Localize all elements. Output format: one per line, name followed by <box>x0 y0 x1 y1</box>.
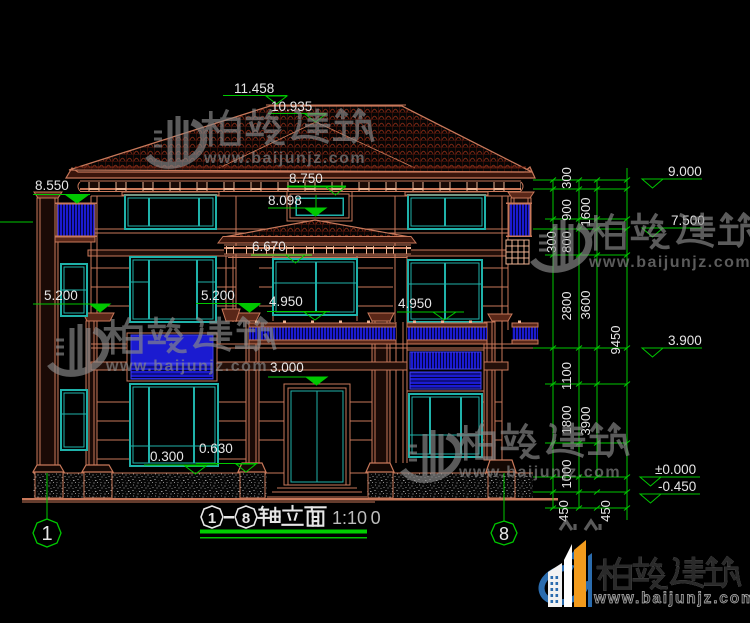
svg-text:2800: 2800 <box>559 292 574 321</box>
svg-text:11.458: 11.458 <box>234 81 274 96</box>
svg-text:450: 450 <box>598 500 613 522</box>
svg-text:4.950: 4.950 <box>269 294 303 309</box>
svg-text:3.900: 3.900 <box>668 333 702 348</box>
svg-text:www.baijunjz.com: www.baijunjz.com <box>458 464 621 481</box>
svg-text:450: 450 <box>556 500 571 522</box>
svg-text:3600: 3600 <box>578 291 593 320</box>
svg-text:10.935: 10.935 <box>271 99 312 114</box>
svg-text:4.950: 4.950 <box>398 296 432 311</box>
svg-text:0.630: 0.630 <box>199 441 233 456</box>
svg-text:1100: 1100 <box>559 362 574 390</box>
svg-text:0.300: 0.300 <box>150 449 184 464</box>
svg-text:1: 1 <box>41 523 52 545</box>
svg-text:8.550: 8.550 <box>35 178 69 193</box>
svg-text:3.000: 3.000 <box>270 360 304 375</box>
svg-text:300: 300 <box>559 167 574 189</box>
svg-text:8: 8 <box>242 510 250 527</box>
svg-text:900: 900 <box>559 199 574 221</box>
svg-text:6.670: 6.670 <box>252 239 286 254</box>
svg-text:±0.000: ±0.000 <box>655 462 696 477</box>
svg-text:www.baijunjz.com: www.baijunjz.com <box>105 358 268 375</box>
svg-text:5.200: 5.200 <box>44 288 78 303</box>
svg-text:8.750: 8.750 <box>289 171 323 186</box>
svg-text:9450: 9450 <box>608 326 623 355</box>
svg-text:www.baijunjz.com: www.baijunjz.com <box>203 150 366 167</box>
svg-text:1600: 1600 <box>578 198 593 227</box>
svg-text:www.baijunjz.com: www.baijunjz.com <box>593 590 750 607</box>
svg-text:8: 8 <box>499 524 509 544</box>
svg-text:9.000: 9.000 <box>668 164 702 179</box>
svg-text:5.200: 5.200 <box>201 288 235 303</box>
svg-text:www.baijunjz.com: www.baijunjz.com <box>588 254 750 271</box>
svg-text:-0.450: -0.450 <box>658 479 696 494</box>
svg-text:8.098: 8.098 <box>268 193 302 208</box>
svg-text:1:10 0: 1:10 0 <box>332 508 381 528</box>
svg-text:1: 1 <box>208 510 216 527</box>
